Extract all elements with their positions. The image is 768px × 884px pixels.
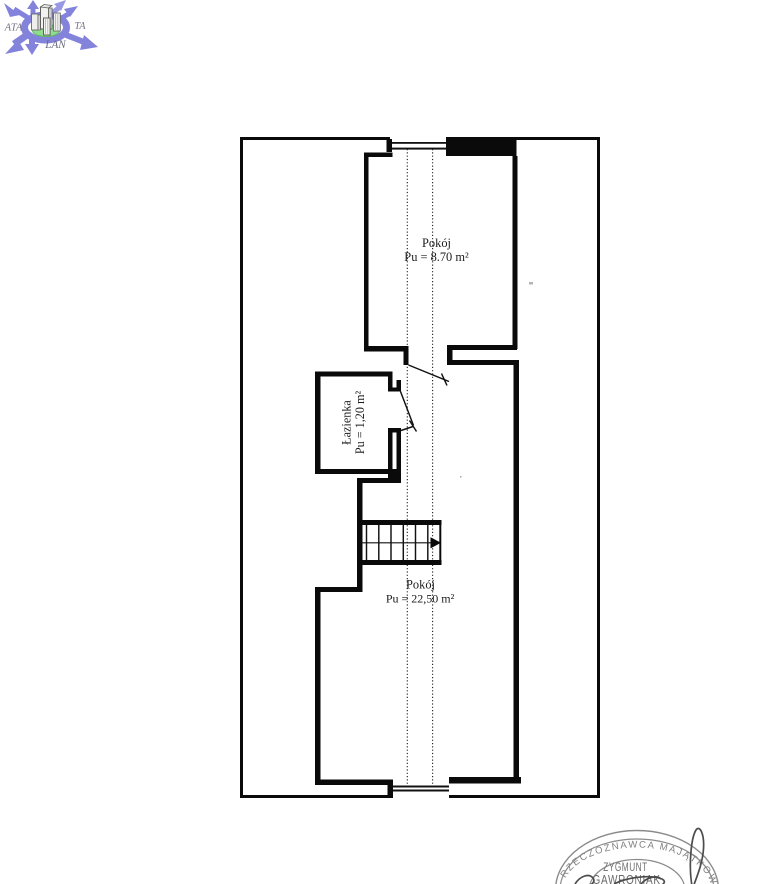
svg-text:LAN: LAN <box>44 39 66 51</box>
svg-text:ŁazienkaPu = 1,20 m²: ŁazienkaPu = 1,20 m² <box>340 390 367 454</box>
svg-text:Pu = 22,50 m²: Pu = 22,50 m² <box>386 591 455 605</box>
svg-text:Pokój: Pokój <box>422 236 451 250</box>
svg-text:ZYGMUNT: ZYGMUNT <box>603 862 647 875</box>
svg-text:Pu = 8.70 m²: Pu = 8.70 m² <box>404 250 469 264</box>
svg-text:TA: TA <box>75 21 87 32</box>
svg-text:Pokój: Pokój <box>406 578 435 592</box>
svg-text:ATA: ATA <box>4 22 23 34</box>
